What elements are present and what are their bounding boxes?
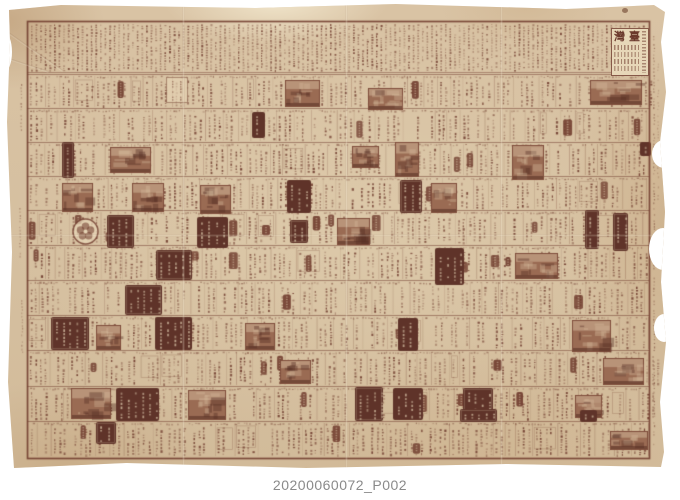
paper-tear (654, 314, 674, 342)
masthead-microtext-row (614, 52, 640, 57)
masthead-char-right: 臺 (629, 31, 640, 43)
fox-spot (622, 8, 628, 13)
scanned-newspaper-page: 灣 臺 (6, 2, 667, 469)
masthead-char-left: 灣 (614, 31, 625, 43)
image-id-caption: 20200060072_P002 (0, 470, 680, 500)
print-texture-canvas (0, 0, 680, 500)
masthead-microtext-row (614, 45, 640, 50)
masthead-title: 灣 臺 (614, 31, 640, 43)
masthead-microtext-row (614, 66, 640, 71)
masthead-microtext-column (642, 31, 646, 73)
fold-crease-horizontal (6, 234, 667, 237)
archive-scan: 灣 臺 20200060072_P002 (0, 0, 680, 500)
masthead-box: 灣 臺 (611, 28, 649, 76)
paper-tear (649, 228, 677, 270)
masthead-main: 灣 臺 (614, 31, 640, 73)
paper-tear (652, 140, 676, 168)
masthead-microtext-row (614, 59, 640, 64)
